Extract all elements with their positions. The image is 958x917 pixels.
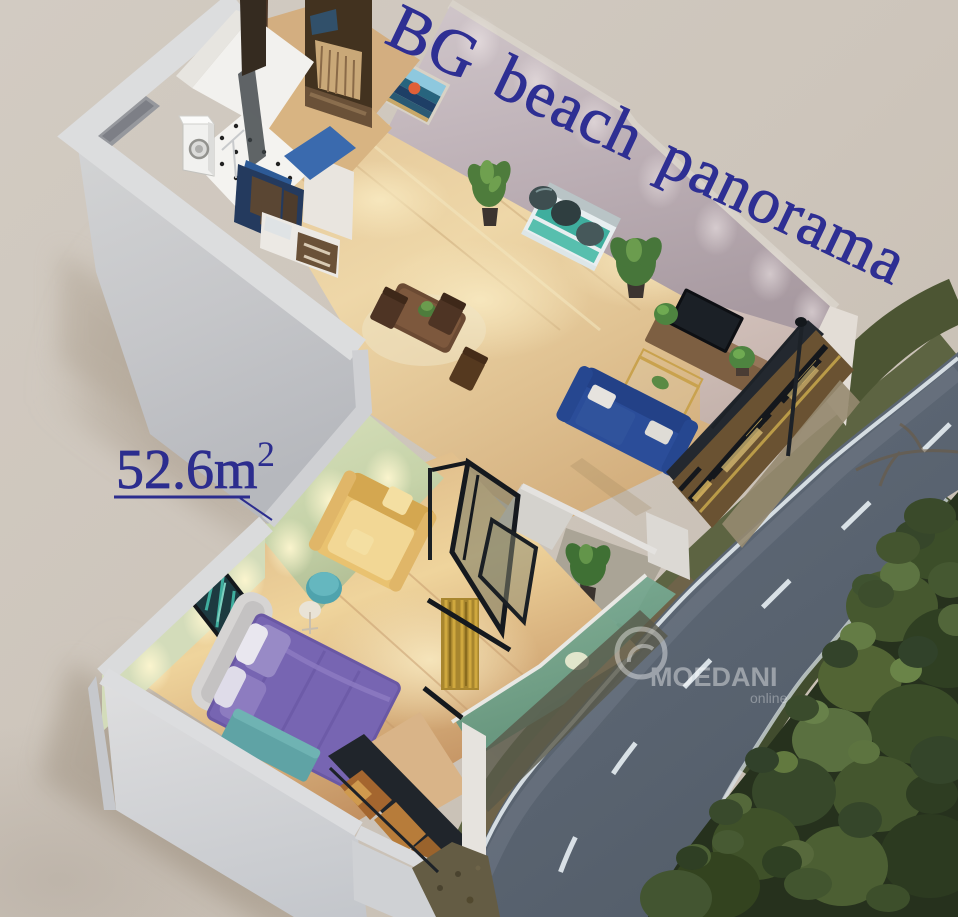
svg-text:online: online [750, 690, 788, 706]
svg-text:2: 2 [257, 434, 275, 474]
svg-text:MOEDANI: MOEDANI [650, 662, 778, 692]
svg-text:52.6m: 52.6m [116, 439, 258, 501]
